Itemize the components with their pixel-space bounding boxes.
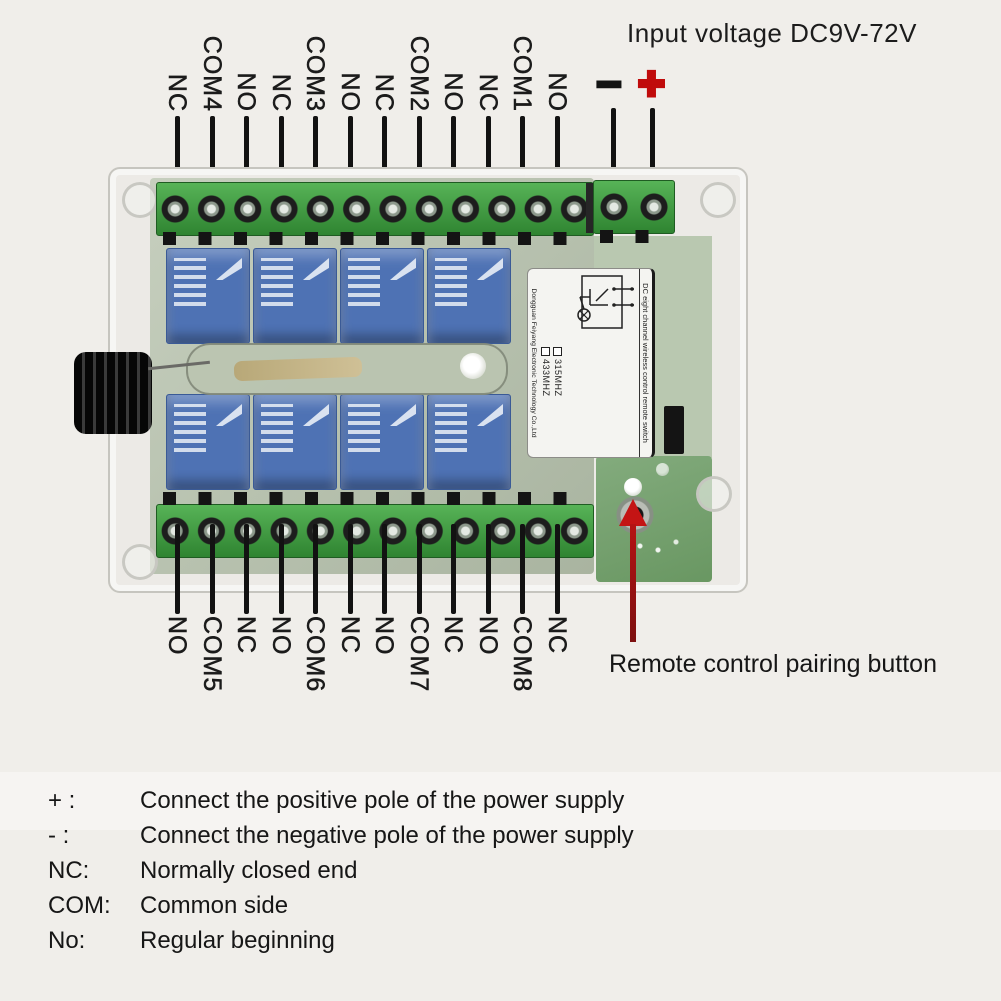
- leader-line: [417, 524, 422, 614]
- leader-line: [486, 524, 491, 614]
- terminal-label-bottom: COM8: [509, 616, 535, 692]
- frequency-label: 315MHZ: [553, 359, 563, 397]
- terminal-label-bottom: NO: [475, 616, 501, 656]
- pcb-pairing-area: [596, 456, 712, 582]
- plus-symbol: +: [638, 56, 665, 110]
- terminal-label-bottom: NO: [268, 616, 294, 656]
- arrow-line: [630, 524, 636, 642]
- terminal-label-bottom: COM7: [406, 616, 432, 692]
- terminal-label-top: COM1: [509, 36, 535, 112]
- enclosure-screw-boss: [696, 476, 732, 512]
- terminal-pins-bottom: [163, 492, 587, 505]
- legend-row: - : Connect the negative pole of the pow…: [48, 818, 634, 853]
- terminal-label-bottom: COM6: [302, 616, 328, 692]
- legend-key: + :: [48, 783, 140, 818]
- status-led: [460, 353, 486, 379]
- frequency-option: 433MHZ: [541, 347, 551, 397]
- terminal-label-bottom: NO: [164, 616, 190, 656]
- terminal-label-top: NO: [233, 73, 259, 113]
- legend-row: + : Connect the positive pole of the pow…: [48, 783, 634, 818]
- terminal-pins-power: [600, 230, 670, 243]
- leader-line: [382, 524, 387, 614]
- frequency-option: 315MHZ: [553, 347, 563, 397]
- checkbox-icon: [542, 347, 551, 356]
- electronic-component: [664, 406, 684, 454]
- terminal-label-bottom: NC: [233, 616, 259, 654]
- leader-line: [451, 524, 456, 614]
- leader-line: [210, 524, 215, 614]
- legend-row: NC: Normally closed end: [48, 853, 634, 888]
- leader-line: [555, 524, 560, 614]
- input-voltage-title: Input voltage DC9V-72V: [627, 18, 917, 49]
- leader-line: [520, 524, 525, 614]
- terminal-label-bottom: COM5: [199, 616, 225, 692]
- legend-key: No:: [48, 923, 140, 958]
- legend-key: NC:: [48, 853, 140, 888]
- board-label-frequencies: 315MHZ 433MHZ: [538, 343, 639, 457]
- indicator-led: [624, 478, 642, 496]
- terminal-label-top: NO: [440, 73, 466, 113]
- terminal-label-top: COM2: [406, 36, 432, 112]
- relay: [166, 248, 250, 344]
- terminal-label-top: NO: [337, 73, 363, 113]
- relay: [427, 394, 511, 490]
- legend-row: No: Regular beginning: [48, 923, 634, 958]
- terminal-label-bottom: NO: [371, 616, 397, 656]
- enclosure-screw-boss: [122, 182, 158, 218]
- legend-row: COM: Common side: [48, 888, 634, 923]
- legend-value: Normally closed end: [140, 853, 357, 888]
- legend-key: - :: [48, 818, 140, 853]
- terminal-strip-bottom: [156, 504, 594, 558]
- relay: [340, 248, 424, 344]
- relay: [253, 248, 337, 344]
- enclosure-window: [186, 343, 508, 395]
- terminal-pins-top: [163, 232, 587, 245]
- legend-key: COM:: [48, 888, 140, 923]
- terminal-label-top: COM4: [199, 36, 225, 112]
- leader-line: [244, 524, 249, 614]
- board-label-content: DC eight channel wireless control remote…: [527, 268, 655, 458]
- relay: [340, 394, 424, 490]
- board-label-sticker: DC eight channel wireless control remote…: [527, 268, 655, 458]
- terminal-strip-top: [156, 182, 594, 236]
- power-terminal-block: [593, 180, 675, 234]
- relay: [427, 248, 511, 344]
- checkbox-icon: [554, 347, 563, 356]
- arrow-up-icon: [619, 499, 647, 526]
- terminal-label-top: NO: [544, 73, 570, 113]
- legend-value: Connect the positive pole of the power s…: [140, 783, 624, 818]
- enclosure-screw-boss: [122, 544, 158, 580]
- internal-component: [234, 357, 363, 381]
- terminal-label-bottom: NC: [544, 616, 570, 654]
- relay: [253, 394, 337, 490]
- legend: + : Connect the positive pole of the pow…: [48, 783, 634, 958]
- wiring-schematic: [574, 275, 636, 341]
- terminal-label-top: COM3: [302, 36, 328, 112]
- leader-line: [175, 524, 180, 614]
- terminal-label-top: NC: [268, 74, 294, 112]
- leader-line: [313, 524, 318, 614]
- minus-symbol: −: [596, 60, 622, 110]
- product-diagram: Input voltage DC9V-72V NC COM4 NO NC COM…: [0, 0, 1001, 1001]
- terminal-label-top: NC: [371, 74, 397, 112]
- pairing-button-note: Remote control pairing button: [609, 650, 937, 679]
- strip-gap: [586, 183, 593, 233]
- board-label-body: 315MHZ 433MHZ: [538, 269, 639, 457]
- leader-line: [348, 524, 353, 614]
- terminal-label-top: NC: [475, 74, 501, 112]
- relay: [166, 394, 250, 490]
- frequency-label: 433MHZ: [541, 359, 551, 397]
- enclosure-screw-boss: [700, 182, 736, 218]
- board-label-title: DC eight channel wireless control remote…: [639, 269, 652, 457]
- indicator-led: [656, 463, 669, 476]
- antenna-coil: [74, 352, 152, 434]
- terminal-label-top: NC: [164, 74, 190, 112]
- leader-line: [279, 524, 284, 614]
- terminal-label-bottom: NC: [337, 616, 363, 654]
- board-label-company: Dongguan Feiyang Electronic Technology C…: [528, 269, 538, 457]
- legend-value: Common side: [140, 888, 288, 923]
- terminal-label-bottom: NC: [440, 616, 466, 654]
- legend-value: Regular beginning: [140, 923, 335, 958]
- legend-value: Connect the negative pole of the power s…: [140, 818, 634, 853]
